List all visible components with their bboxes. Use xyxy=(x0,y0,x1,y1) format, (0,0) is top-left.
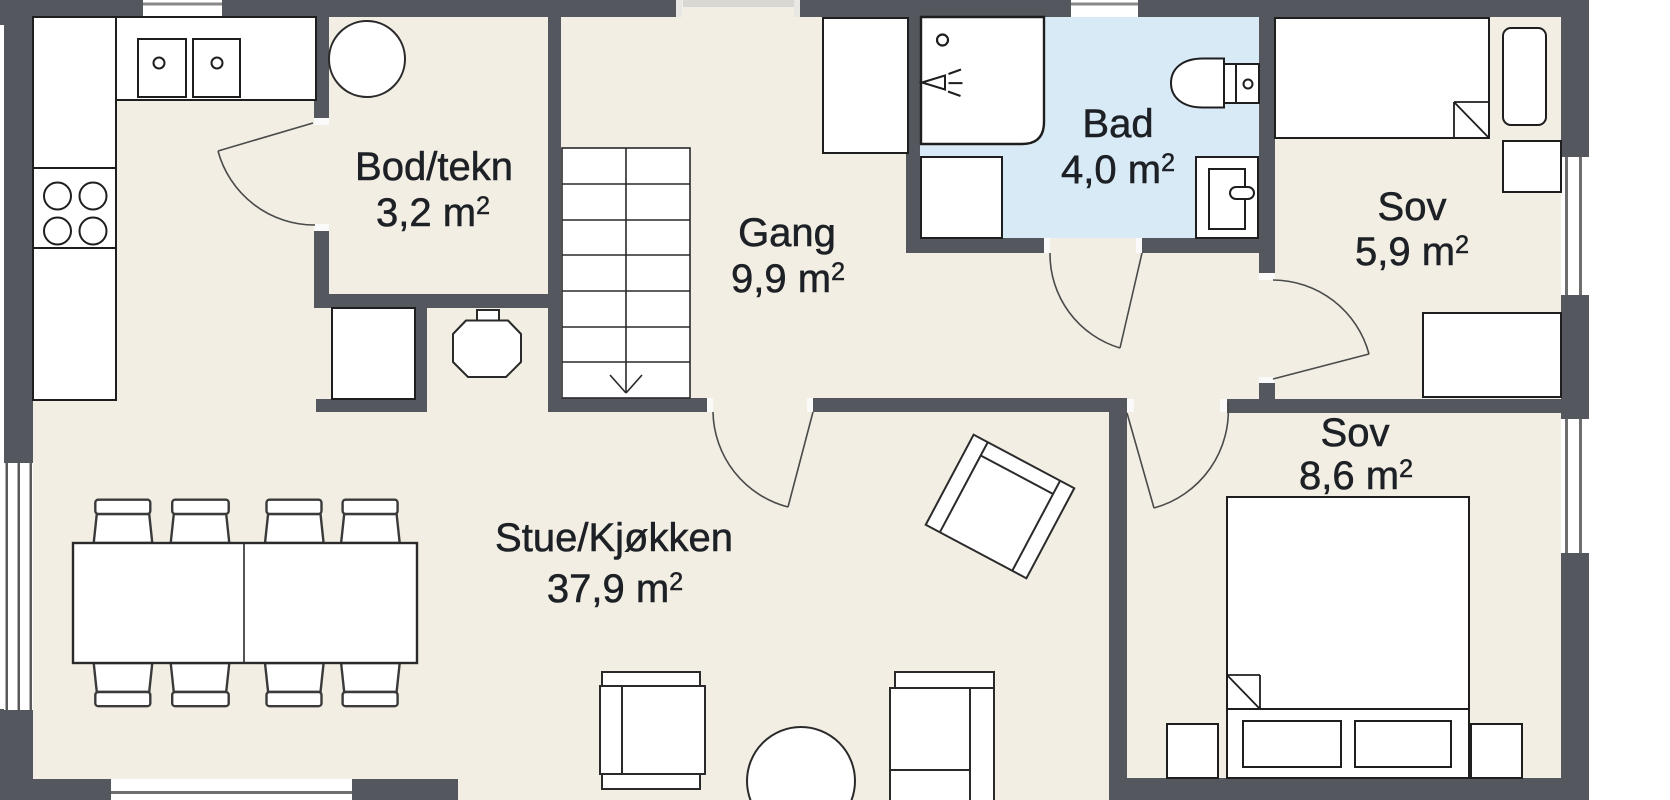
svg-text:3,2 m2: 3,2 m2 xyxy=(376,191,490,235)
svg-text:4,0 m2: 4,0 m2 xyxy=(1061,148,1175,192)
svg-text:Bod/tekn: Bod/tekn xyxy=(355,145,513,189)
svg-text:Bad: Bad xyxy=(1082,102,1153,146)
svg-text:9,9 m2: 9,9 m2 xyxy=(731,257,845,301)
svg-text:Sov: Sov xyxy=(1378,185,1447,229)
svg-text:Sov: Sov xyxy=(1321,411,1390,455)
svg-text:5,9 m2: 5,9 m2 xyxy=(1355,230,1469,274)
svg-text:37,9 m2: 37,9 m2 xyxy=(547,567,683,611)
svg-text:8,6 m2: 8,6 m2 xyxy=(1299,454,1413,498)
svg-text:Stue/Kjøkken: Stue/Kjøkken xyxy=(495,516,733,560)
svg-text:Gang: Gang xyxy=(738,211,836,255)
